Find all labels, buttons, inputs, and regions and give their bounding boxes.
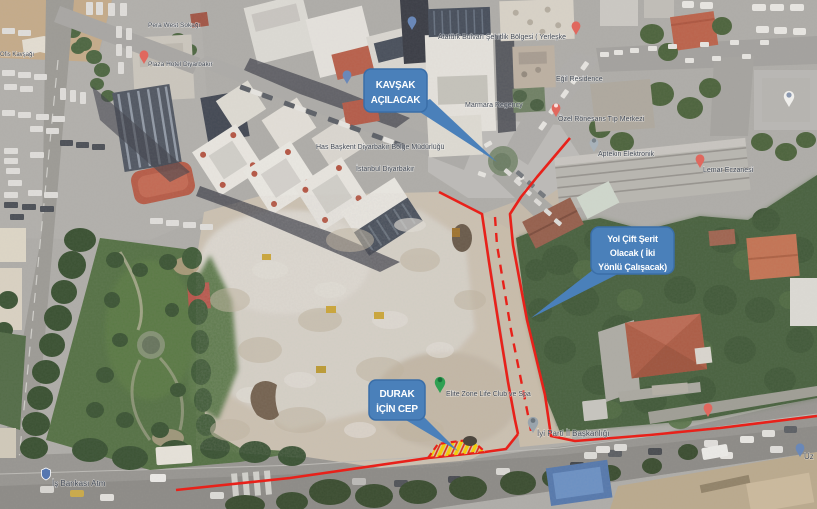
svg-text:Özel Rönesans Tıp Merkezi: Özel Rönesans Tıp Merkezi [558,115,645,123]
svg-text:Lemar Eczanesi: Lemar Eczanesi [703,167,754,174]
svg-text:Olacak ( İki: Olacak ( İki [610,248,655,258]
svg-text:Atatürk Bulvarı Şehitlik Bölge: Atatürk Bulvarı Şehitlik Bölgesi ( Yerle… [438,34,566,41]
svg-text:Uz: Uz [804,452,814,461]
svg-text:KAVŞAK: KAVŞAK [376,80,416,91]
svg-text:Aptekin Elektronik: Aptekin Elektronik [598,151,655,158]
svg-text:Ofis Kavşağı: Ofis Kavşağı [0,52,34,58]
svg-text:Yönlü Çalışacak): Yönlü Çalışacak) [598,262,667,272]
svg-text:Elite Zone Life Club ve Spa: Elite Zone Life Club ve Spa [446,391,531,398]
svg-text:Plaza Hotel Diyarbakır: Plaza Hotel Diyarbakır [148,61,213,68]
svg-text:İÇİN CEP: İÇİN CEP [376,402,418,415]
svg-text:Has Başkent Diyarbakır Bölge M: Has Başkent Diyarbakır Bölge Müdürlüğü [316,144,445,151]
svg-text:İş Bankası Atm: İş Bankası Atm [52,479,106,488]
svg-text:Yol Çift Şerit: Yol Çift Şerit [607,234,658,244]
svg-text:AÇILACAK: AÇILACAK [371,95,421,106]
svg-text:İstanbul Diyarbakır: İstanbul Diyarbakır [356,164,415,173]
svg-text:Eğil Residence: Eğil Residence [556,76,603,83]
svg-text:DURAK: DURAK [379,389,415,400]
svg-text:Marmara Regency: Marmara Regency [465,102,523,109]
svg-text:Pera West Sokağı: Pera West Sokağı [148,22,200,29]
svg-text:İyi Parti İl Başkanlığı: İyi Parti İl Başkanlığı [537,429,609,438]
